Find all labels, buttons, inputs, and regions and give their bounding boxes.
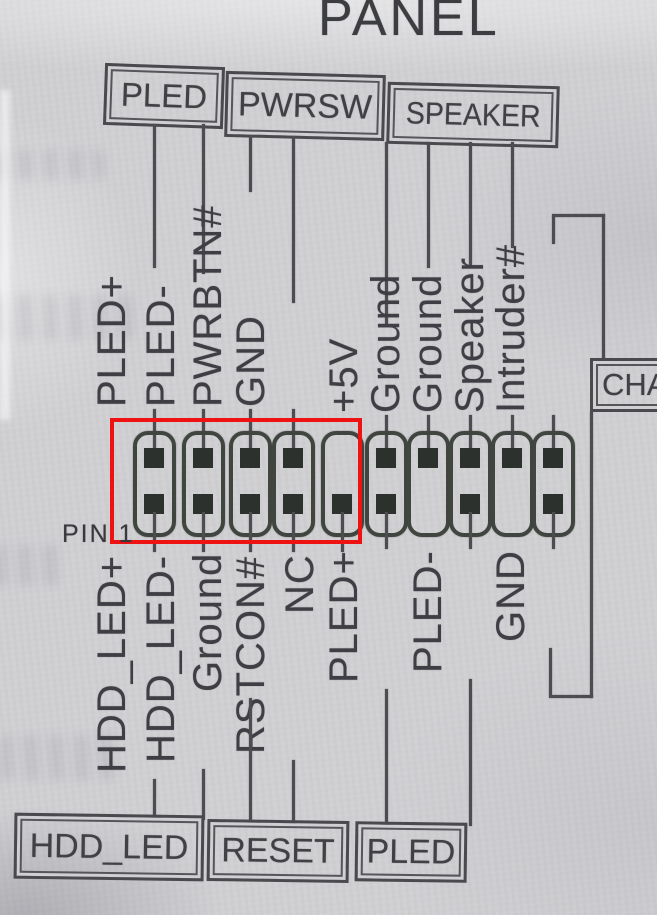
pin-label-top: GND — [230, 315, 272, 407]
pin-capsule-9 — [491, 431, 534, 537]
bottom-box-reset-label: RESET — [221, 831, 335, 872]
page-title: PANEL — [318, 0, 500, 48]
highlight-rectangle — [110, 418, 362, 544]
connector-line — [249, 698, 252, 824]
pin-label-top: Speaker — [449, 257, 491, 413]
pin-label-bottom: PLED+ — [323, 550, 365, 683]
pin-label-top: PWRBTN# — [187, 204, 229, 407]
pin-label-bottom: NC — [279, 554, 321, 614]
scanned-manual-page: PANEL PLED PWRSW SPEAKER PLED+ PLED- PWR… — [0, 0, 657, 915]
bleed-through-artifact — [0, 545, 64, 585]
connector-line — [249, 136, 252, 192]
pin-stub — [469, 512, 472, 549]
pin-label-top: PLED+ — [91, 274, 133, 407]
pin-label-bottom: HDD_LED+ — [91, 555, 133, 773]
pin-square — [418, 448, 438, 468]
bottom-box-pled: PLED — [355, 821, 468, 883]
pin-label-bottom: GND — [490, 550, 532, 642]
connector-line — [292, 136, 295, 303]
pin-label-top: Intruder# — [490, 244, 532, 413]
bottom-box-hdd-led: HDD_LED — [14, 813, 205, 882]
pin-square — [376, 494, 396, 514]
pin-stub — [552, 512, 555, 549]
pin-square — [460, 494, 480, 514]
pin-square — [543, 448, 563, 468]
chassis-box-label: CHA — [602, 367, 657, 403]
top-box-pled: PLED — [103, 63, 225, 129]
top-box-pwrsw: PWRSW — [224, 71, 386, 141]
pin-label-top: +5V — [323, 338, 365, 413]
scan-edge-highlight — [0, 90, 10, 420]
connector-line — [202, 769, 205, 820]
bottom-box-hdd-led-label: HDD_LED — [29, 826, 188, 867]
connector-line — [469, 679, 472, 826]
pin-label-bottom: Ground — [187, 553, 229, 692]
top-box-speaker: SPEAKER — [386, 82, 560, 148]
pin-square — [460, 448, 480, 468]
pin-square — [543, 494, 563, 514]
connector-line — [511, 142, 514, 248]
pin-label-top: PLED- — [140, 284, 182, 407]
gnd-bracket-up — [590, 412, 593, 698]
bottom-box-pled-label: PLED — [366, 832, 455, 872]
connector-line — [427, 142, 430, 268]
bleed-through-artifact — [0, 150, 104, 180]
pin1-label: PIN 1 — [62, 520, 135, 549]
bottom-box-reset: RESET — [207, 819, 350, 883]
intruder-bracket-down — [602, 214, 605, 360]
gnd-bracket-stub — [549, 648, 552, 695]
top-box-pwrsw-label: PWRSW — [237, 85, 372, 127]
connector-line — [292, 760, 295, 824]
connector-line — [153, 124, 156, 268]
intruder-bracket-top — [552, 214, 605, 217]
pin-label-top: Ground — [365, 274, 407, 413]
top-box-speaker-label: SPEAKER — [405, 95, 541, 135]
gnd-bracket-bottom — [549, 695, 593, 698]
connector-line — [469, 142, 472, 268]
top-box-pled-label: PLED — [120, 76, 207, 117]
pin-label-top: Ground — [407, 274, 449, 413]
connector-line — [385, 689, 388, 826]
intruder-bracket-stub — [552, 216, 555, 244]
pin-label-bottom: HDD_LED- — [140, 555, 182, 763]
chassis-box: CHA — [590, 358, 657, 412]
pin-stub — [385, 512, 388, 549]
pin-square — [502, 448, 522, 468]
pin-label-bottom: PLED- — [407, 550, 449, 673]
pin-capsule-7 — [407, 431, 450, 537]
pin-square — [376, 448, 396, 468]
